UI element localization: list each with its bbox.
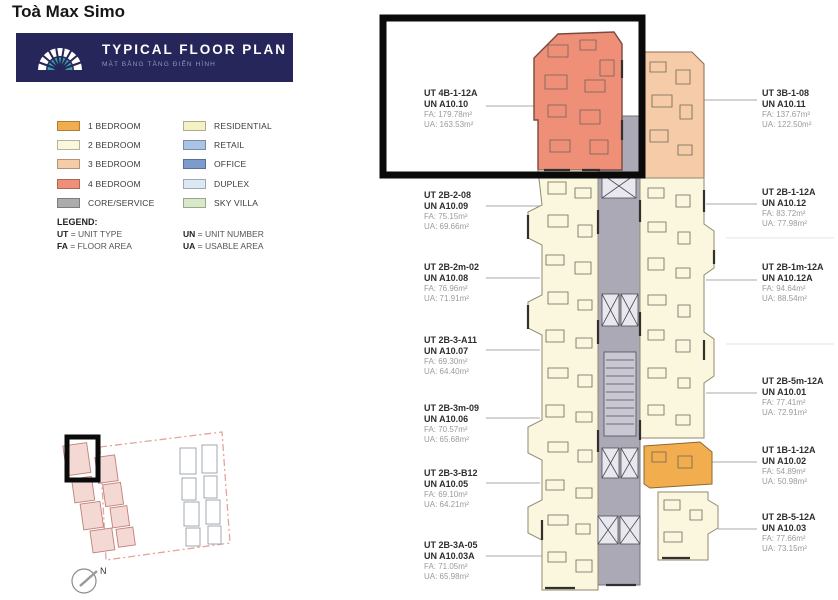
unit-un-line: UN A10.02: [762, 456, 816, 467]
arch-logo-icon: [36, 38, 84, 78]
unit-2-bedroom-A10-03: [658, 492, 718, 560]
legend-label: SKY VILLA: [214, 198, 258, 208]
unit-ut-line: UT 2B-2m-02: [424, 262, 479, 273]
legend-abbr-item: FA = FLOOR AREA: [57, 241, 183, 253]
unit-4-bedroom-A10-10: [534, 32, 622, 170]
legend-item: 4 BEDROOM: [57, 179, 183, 189]
compass-icon: N: [72, 566, 107, 593]
legend-swatch: [57, 140, 80, 150]
unit-label-left-3: UT 2B-3-A11UN A10.07FA: 69.30m²UA: 64.40…: [424, 335, 477, 376]
legend-item: 3 BEDROOM: [57, 159, 183, 169]
unit-fa-line: FA: 75.15m²: [424, 212, 471, 222]
minimap-right-towers: [180, 445, 221, 546]
unit-fa-line: FA: 69.30m²: [424, 357, 477, 367]
unit-un-line: UN A10.07: [424, 346, 477, 357]
legend-item: OFFICE: [183, 159, 272, 169]
unit-un-line: UN A10.08: [424, 273, 479, 284]
legend-label: 3 BEDROOM: [88, 159, 141, 169]
unit-ut-line: UT 2B-5m-12A: [762, 376, 824, 387]
unit-label-right-1: UT 2B-1-12AUN A10.12FA: 83.72m²UA: 77.98…: [762, 187, 816, 228]
unit-ua-line: UA: 69.66m²: [424, 222, 471, 232]
legend-swatch: [57, 179, 80, 189]
unit-label-left-0: UT 4B-1-12AUN A10.10FA: 179.78m²UA: 163.…: [424, 88, 478, 129]
page-title: Toà Max Simo: [12, 2, 125, 22]
legend-item: RESIDENTIAL: [183, 121, 272, 131]
legend-item: SKY VILLA: [183, 198, 272, 208]
floor-plan-svg: N: [0, 0, 838, 600]
legend-label: RETAIL: [214, 140, 244, 150]
unit-un-line: UN A10.03A: [424, 551, 478, 562]
unit-label-right-4: UT 1B-1-12AUN A10.02FA: 54.89m²UA: 50.98…: [762, 445, 816, 486]
left-wing-2-bedroom-units: [528, 170, 598, 590]
unit-un-line: UN A10.12A: [762, 273, 824, 284]
unit-fa-line: FA: 77.66m²: [762, 534, 816, 544]
unit-ut-line: UT 2B-1-12A: [762, 187, 816, 198]
unit-ut-line: UT 1B-1-12A: [762, 445, 816, 456]
unit-ua-line: UA: 64.21m²: [424, 500, 478, 510]
legend-swatch: [57, 121, 80, 131]
unit-label-left-5: UT 2B-3-B12UN A10.05FA: 69.10m²UA: 64.21…: [424, 468, 478, 509]
unit-ua-line: UA: 88.54m²: [762, 294, 824, 304]
unit-label-right-2: UT 2B-1m-12AUN A10.12AFA: 94.64m²UA: 88.…: [762, 262, 824, 303]
floor-plan-sheet: N Toà Max Simo TYPICAL FLOOR PLAN MẶT BẰ…: [0, 0, 838, 600]
unit-un-line: UN A10.11: [762, 99, 811, 110]
unit-fa-line: FA: 137.67m²: [762, 110, 811, 120]
unit-un-line: UN A10.10: [424, 99, 478, 110]
unit-un-line: UN A10.06: [424, 414, 479, 425]
unit-label-right-5: UT 2B-5-12AUN A10.03FA: 77.66m²UA: 73.15…: [762, 512, 816, 553]
legend-item: 1 BEDROOM: [57, 121, 183, 131]
banner-subtitle: MẶT BẰNG TẦNG ĐIỂN HÌNH: [102, 61, 287, 68]
legend-swatch: [183, 121, 206, 131]
unit-ua-line: UA: 163.53m²: [424, 120, 478, 130]
unit-ua-line: UA: 122.50m²: [762, 120, 811, 130]
stairs-icon: [604, 352, 636, 436]
unit-label-left-2: UT 2B-2m-02UN A10.08FA: 76.96m²UA: 71.91…: [424, 262, 479, 303]
unit-ua-line: UA: 50.98m²: [762, 477, 816, 487]
unit-ua-line: UA: 71.91m²: [424, 294, 479, 304]
legend-label: DUPLEX: [214, 179, 249, 189]
unit-ut-line: UT 2B-5-12A: [762, 512, 816, 523]
unit-label-right-3: UT 2B-5m-12AUN A10.01FA: 77.41m²UA: 72.9…: [762, 376, 824, 417]
legend-swatch: [183, 179, 206, 189]
unit-label-right-0: UT 3B-1-08UN A10.11FA: 137.67m²UA: 122.5…: [762, 88, 811, 129]
legend-abbr-item: UA = USABLE AREA: [183, 241, 264, 253]
unit-fa-line: FA: 94.64m²: [762, 284, 824, 294]
legend-swatch: [183, 198, 206, 208]
unit-fa-line: FA: 54.89m²: [762, 467, 816, 477]
unit-label-left-1: UT 2B-2-08UN A10.09FA: 75.15m²UA: 69.66m…: [424, 190, 471, 231]
unit-ua-line: UA: 64.40m²: [424, 367, 477, 377]
unit-label-left-4: UT 2B-3m-09UN A10.06FA: 70.57m²UA: 65.68…: [424, 403, 479, 444]
right-wing-upper-units: [640, 178, 714, 438]
legend-item: 2 BEDROOM: [57, 140, 183, 150]
unit-fa-line: FA: 70.57m²: [424, 425, 479, 435]
unit-ua-line: UA: 73.15m²: [762, 544, 816, 554]
unit-un-line: UN A10.01: [762, 387, 824, 398]
unit-ua-line: UA: 72.91m²: [762, 408, 824, 418]
legend-abbr-title: LEGEND:: [57, 217, 264, 227]
unit-un-line: UN A10.12: [762, 198, 816, 209]
unit-fa-line: FA: 179.78m²: [424, 110, 478, 120]
unit-ua-line: UA: 65.68m²: [424, 435, 479, 445]
unit-ut-line: UT 2B-3-B12: [424, 468, 478, 479]
legend-abbreviations: LEGEND: UT = UNIT TYPEUN = UNIT NUMBERFA…: [57, 217, 264, 252]
unit-fa-line: FA: 69.10m²: [424, 490, 478, 500]
legend-item: DUPLEX: [183, 179, 272, 189]
legend-swatch: [57, 198, 80, 208]
floorplan-banner: TYPICAL FLOOR PLAN MẶT BẰNG TẦNG ĐIỂN HÌ…: [16, 33, 293, 82]
unit-3-bedroom-A10-11: [642, 52, 704, 178]
unit-ut-line: UT 2B-3A-05: [424, 540, 478, 551]
banner-title: TYPICAL FLOOR PLAN: [102, 42, 287, 57]
unit-fa-line: FA: 76.96m²: [424, 284, 479, 294]
legend-label: CORE/SERVICE: [88, 198, 154, 208]
legend-swatch: [183, 140, 206, 150]
unit-label-left-6: UT 2B-3A-05UN A10.03AFA: 71.05m²UA: 65.9…: [424, 540, 478, 581]
unit-ut-line: UT 2B-3m-09: [424, 403, 479, 414]
legend-swatch: [183, 159, 206, 169]
unit-fa-line: FA: 77.41m²: [762, 398, 824, 408]
legend-swatch: [57, 159, 80, 169]
unit-un-line: UN A10.03: [762, 523, 816, 534]
legend-label: OFFICE: [214, 159, 246, 169]
unit-ut-line: UT 4B-1-12A: [424, 88, 478, 99]
legend-abbr-item: UT = UNIT TYPE: [57, 229, 183, 241]
unit-ua-line: UA: 77.98m²: [762, 219, 816, 229]
unit-ut-line: UT 2B-1m-12A: [762, 262, 824, 273]
unit-un-line: UN A10.05: [424, 479, 478, 490]
legend-label: 1 BEDROOM: [88, 121, 141, 131]
legend-item: CORE/SERVICE: [57, 198, 183, 208]
legend-label: RESIDENTIAL: [214, 121, 272, 131]
unit-fa-line: FA: 83.72m²: [762, 209, 816, 219]
unit-fa-line: FA: 71.05m²: [424, 562, 478, 572]
site-minimap: N: [63, 432, 230, 593]
legend-item: RETAIL: [183, 140, 272, 150]
north-label: N: [100, 566, 107, 576]
unit-ut-line: UT 2B-2-08: [424, 190, 471, 201]
unit-un-line: UN A10.09: [424, 201, 471, 212]
unit-ut-line: UT 3B-1-08: [762, 88, 811, 99]
legend: 1 BEDROOMRESIDENTIAL2 BEDROOMRETAIL3 BED…: [57, 116, 272, 213]
unit-ua-line: UA: 65.98m²: [424, 572, 478, 582]
legend-label: 2 BEDROOM: [88, 140, 141, 150]
legend-abbr-item: UN = UNIT NUMBER: [183, 229, 264, 241]
unit-ut-line: UT 2B-3-A11: [424, 335, 477, 346]
legend-label: 4 BEDROOM: [88, 179, 141, 189]
